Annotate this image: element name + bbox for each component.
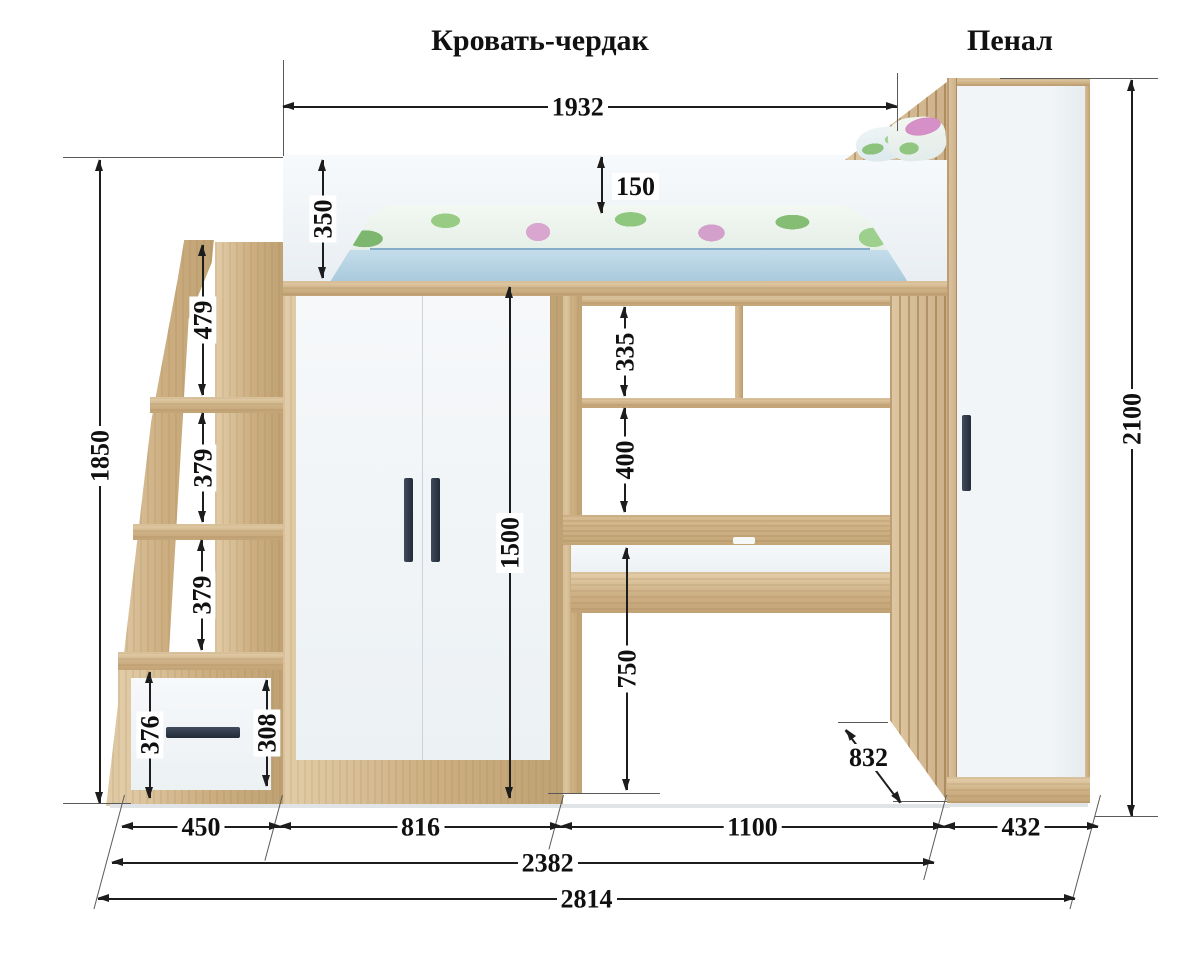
- ladder-step-1: [150, 397, 283, 413]
- dim-bed-width: 1932: [283, 100, 897, 114]
- cabinet-plinth: [947, 777, 1090, 803]
- wardrobe-handle-right[interactable]: [431, 478, 440, 562]
- ext-desk-floor: [548, 793, 660, 794]
- dim-cabinet-height: 2100: [1125, 80, 1139, 816]
- ext-ladder-top: [63, 157, 283, 158]
- drawer-handle[interactable]: [166, 727, 240, 738]
- cabinet-right-edge: [1085, 86, 1090, 777]
- dim-wardrobe-width: 816: [280, 820, 561, 834]
- desk-top: [563, 515, 947, 545]
- dim-mattress-above-rail: [595, 157, 609, 213]
- cabinet-left-side: [947, 78, 957, 803]
- hutch-shelf: [582, 398, 890, 408]
- bedding-floral-band: [330, 205, 908, 250]
- mattress-bedding: [330, 205, 908, 282]
- bed-platform-edge: [283, 281, 947, 296]
- dim-desk-clearance: 750: [620, 548, 634, 790]
- dim-ladder-top-step: 479: [196, 245, 210, 395]
- dim-drawer-box: 376: [143, 672, 157, 798]
- ext-desk-depth-top: [838, 722, 888, 723]
- ladder-step-3: [118, 652, 283, 670]
- wardrobe-door-gap: [422, 296, 423, 760]
- cabinet-handle[interactable]: [962, 415, 971, 491]
- desk-top-highlight: [733, 537, 755, 544]
- cabinet-door[interactable]: [957, 86, 1085, 777]
- dim-rail-height: 350: [316, 160, 330, 278]
- dim-mattress-above-rail-label: 150: [612, 173, 659, 200]
- floor-shadow-main: [110, 804, 950, 808]
- dim-desk-depth-label: 832: [845, 744, 892, 771]
- ladder-step-2: [133, 524, 283, 540]
- dim-shelf-to-desktop: 400: [618, 408, 632, 512]
- floor-shadow-cabinet: [950, 803, 1088, 807]
- dim-overall-width: 2814: [98, 892, 1075, 906]
- title-cabinet: Пенал: [935, 24, 1085, 57]
- dim-cabinet-width: 432: [944, 820, 1098, 834]
- dim-desk-width: 1100: [561, 820, 944, 834]
- hutch-divider: [735, 306, 743, 398]
- dim-cubby-height: 335: [618, 307, 632, 396]
- furniture-dimension-diagram: Кровать-чердак Пенал: [0, 0, 1200, 953]
- dim-drawer-front: 308: [260, 680, 274, 786]
- hutch-top-lip: [563, 296, 947, 306]
- desk-right-panel: [890, 296, 947, 801]
- bedding-blue-band: [330, 250, 908, 282]
- wardrobe-handle-left[interactable]: [404, 478, 413, 562]
- title-loft-bed: Кровать-чердак: [385, 24, 695, 57]
- dim-ladder-height: 1850: [93, 160, 107, 803]
- dim-ladder-step-3: 379: [195, 540, 209, 650]
- dim-combined-width: 2382: [112, 856, 934, 870]
- dim-wardrobe-height: 1500: [503, 287, 517, 798]
- dim-ladder-step-2: 379: [196, 413, 210, 522]
- dim-ladder-width: 450: [122, 820, 280, 834]
